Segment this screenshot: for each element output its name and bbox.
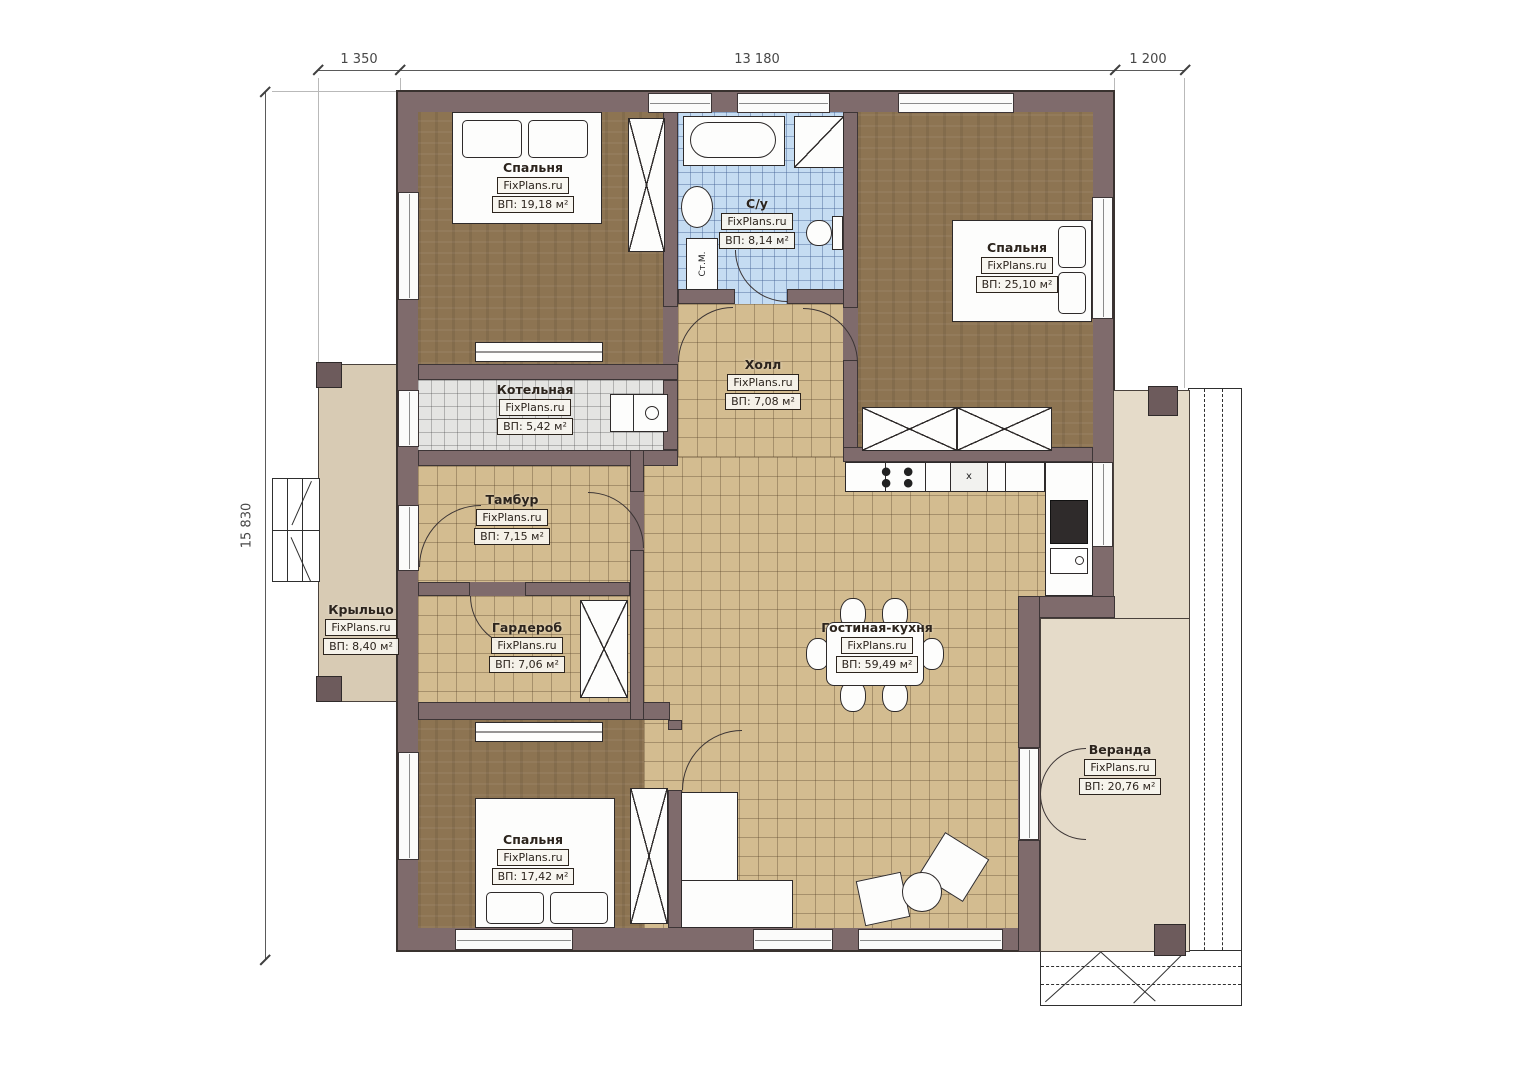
roof-line [1222,389,1223,1005]
dim-left: 15 830 [240,494,255,558]
room-label-living-kitchen: Гостиная-кухня FixPlans.ru ВП: 59,49 м² [807,620,947,673]
room-name: С/у [697,196,817,211]
veranda-roof-right [1188,388,1242,1006]
wall [843,112,858,308]
wardrobe-unit [862,407,957,451]
window [455,929,573,950]
wall [1018,596,1040,748]
pillow [528,120,588,158]
wall [787,289,845,304]
floor-plan: 1 350 13 180 1 200 15 830 [0,0,1528,1080]
room-name: Холл [703,357,823,372]
room-area: ВП: 8,40 м² [323,638,399,655]
kitchen-counter [845,462,1045,492]
room-label-porch: Крыльцо FixPlans.ru ВП: 8,40 м² [311,602,411,655]
porch-post [316,676,342,702]
oven-dial [1075,556,1084,565]
room-label-bedroom-bottom: Спальня FixPlans.ru ВП: 17,42 м² [473,832,593,885]
brand-badge: FixPlans.ru [721,213,792,230]
veranda-post [1148,386,1178,416]
dimension-line-left [265,92,266,960]
sofa-chaise [681,880,793,928]
wall [663,112,678,307]
room-area: ВП: 7,15 м² [474,528,550,545]
bathtub-inner [690,122,776,158]
toilet-tank [832,216,843,250]
dim-top-middle: 13 180 [717,52,797,67]
window [737,93,830,113]
wall [1018,840,1040,952]
roof-line [1041,984,1241,985]
sink-mark: x [966,471,972,482]
stove [876,464,922,490]
dimension-line-top [318,70,1185,71]
wardrobe-unit [580,600,628,698]
wall [668,720,682,730]
window [398,390,419,447]
room-name: Котельная [475,382,595,397]
wardrobe-unit [957,407,1052,451]
dim-extension [318,78,319,364]
pillow [550,892,608,924]
room-label-bedroom-top-left: Спальня FixPlans.ru ВП: 19,18 м² [473,160,593,213]
room-name: Тамбур [452,492,572,507]
room-area: ВП: 25,10 м² [976,276,1059,293]
room-area: ВП: 7,06 м² [489,656,565,673]
kitchen-sink: x [950,462,988,492]
room-name: Гардероб [467,620,587,635]
dim-extension [400,78,401,90]
porch-post [316,362,342,388]
boiler-divider [633,395,634,431]
oven [1050,548,1088,574]
room-name: Спальня [473,832,593,847]
brand-badge: FixPlans.ru [476,509,547,526]
window [753,929,833,950]
room-area: ВП: 17,42 м² [492,868,575,885]
brand-badge: FixPlans.ru [981,257,1052,274]
room-label-boiler: Котельная FixPlans.ru ВП: 5,42 м² [475,382,595,435]
wardrobe-unit [630,788,668,924]
step-diagonal [291,537,311,581]
wall [418,582,470,596]
brand-badge: FixPlans.ru [727,374,798,391]
porch-steps [272,478,320,582]
brand-badge: FixPlans.ru [325,619,396,636]
room-area: ВП: 5,42 м² [497,418,573,435]
fridge [1050,500,1088,544]
room-label-tambour: Тамбур FixPlans.ru ВП: 7,15 м² [452,492,572,545]
room-name: Спальня [473,160,593,175]
window [898,93,1014,113]
brand-badge: FixPlans.ru [1084,759,1155,776]
veranda-floor [1113,390,1190,619]
dim-top-left: 1 350 [329,52,389,67]
room-name: Гостиная-кухня [807,620,947,635]
wall [630,550,644,720]
dim-extension [1114,78,1115,90]
wall [525,582,630,596]
dim-top-right: 1 200 [1116,52,1180,67]
coffee-table [902,872,942,912]
wardrobe-unit [628,118,665,252]
veranda-post [1154,924,1186,956]
window [858,929,1003,950]
wall [843,360,858,457]
room-name: Веранда [1058,742,1182,757]
brand-badge: FixPlans.ru [497,849,568,866]
window [648,93,712,113]
window [1092,197,1113,319]
wall [630,450,644,492]
roof-line [1041,966,1241,967]
shower [794,116,844,168]
entrance-door [398,505,419,571]
room-label-bathroom: С/у FixPlans.ru ВП: 8,14 м² [697,196,817,249]
room-label-bedroom-top-right: Спальня FixPlans.ru ВП: 25,10 м² [957,240,1077,293]
window [398,752,419,860]
room-area: ВП: 7,08 м² [725,393,801,410]
room-name: Крыльцо [311,602,411,617]
dresser [475,342,603,362]
brand-badge: FixPlans.ru [499,399,570,416]
room-label-veranda: Веранда FixPlans.ru ВП: 20,76 м² [1058,742,1182,795]
room-area: ВП: 20,76 м² [1079,778,1162,795]
pillow [462,120,522,158]
wall [418,364,678,380]
brand-badge: FixPlans.ru [497,177,568,194]
boiler-dial [645,406,659,420]
dresser [475,722,603,742]
wall [678,289,735,304]
room-area: ВП: 19,18 м² [492,196,575,213]
room-area: ВП: 59,49 м² [836,656,919,673]
dim-extension [1184,78,1185,388]
brand-badge: FixPlans.ru [491,637,562,654]
window [398,192,419,300]
room-label-hall: Холл FixPlans.ru ВП: 7,08 м² [703,357,823,410]
wall [668,790,682,928]
dim-extension [272,91,396,92]
brand-badge: FixPlans.ru [841,637,912,654]
room-label-wardrobe: Гардероб FixPlans.ru ВП: 7,06 м² [467,620,587,673]
step-line [273,530,319,531]
armchair [856,872,911,927]
window [1092,462,1113,547]
roof-line [1204,389,1205,1005]
pillow [486,892,544,924]
bathtub [683,116,785,166]
room-name: Спальня [957,240,1077,255]
boiler-unit [610,394,668,432]
room-area: ВП: 8,14 м² [719,232,795,249]
veranda-door [1019,748,1039,840]
